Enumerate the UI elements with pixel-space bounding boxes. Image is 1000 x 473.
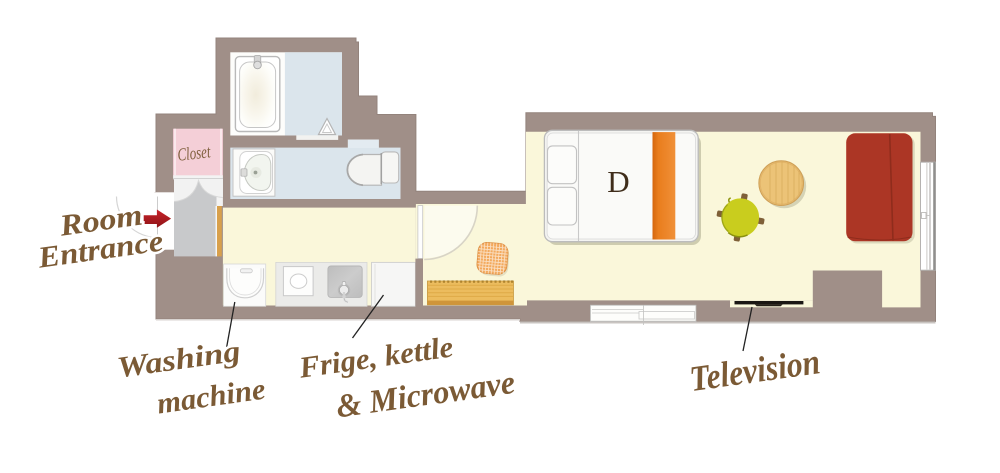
- svg-text:D: D: [607, 164, 629, 199]
- svg-text:Television: Television: [687, 341, 822, 399]
- svg-text:Washing: Washing: [115, 335, 242, 385]
- svg-text:machine: machine: [155, 373, 268, 421]
- svg-text:Entrance: Entrance: [35, 224, 165, 274]
- svg-text:Closet: Closet: [176, 141, 212, 164]
